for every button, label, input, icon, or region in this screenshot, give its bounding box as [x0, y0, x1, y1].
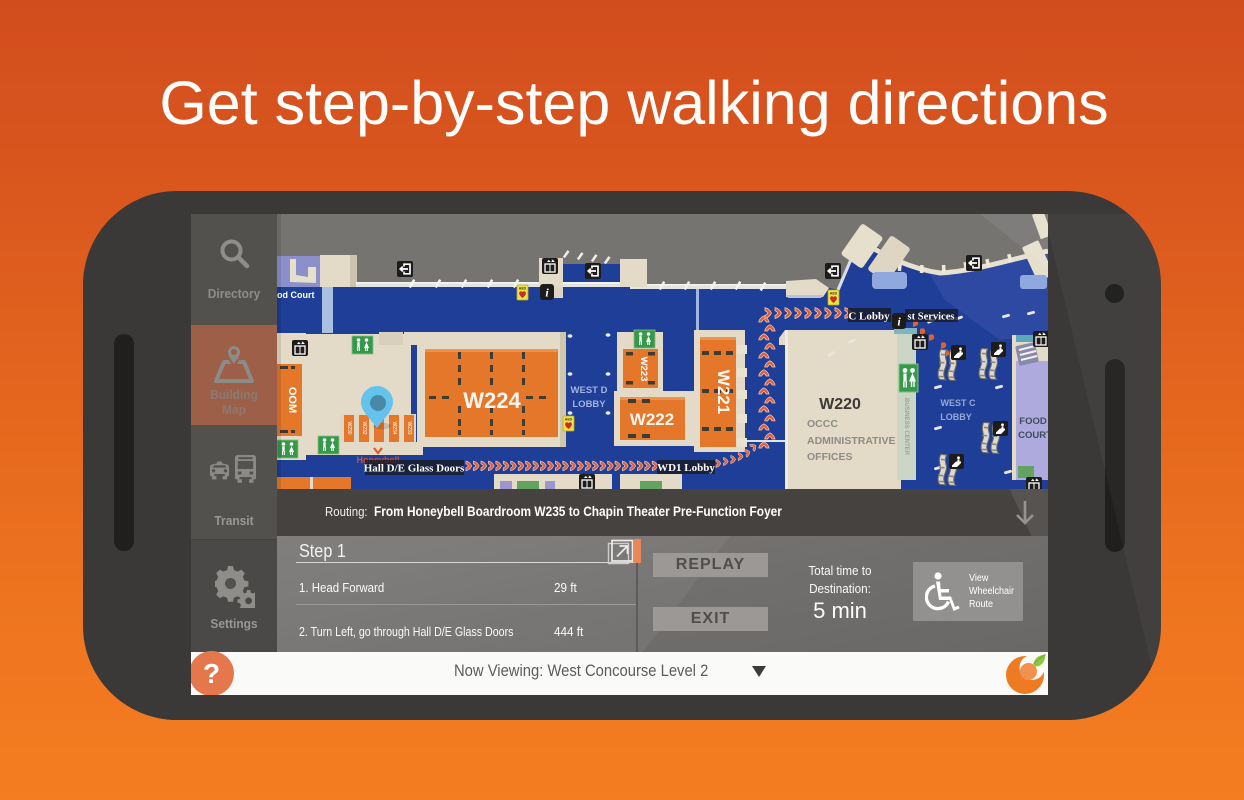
svg-text:OCCC: OCCC — [807, 418, 838, 430]
svg-text:W221: W221 — [714, 370, 733, 414]
svg-text:COURT: COURT — [1018, 430, 1048, 441]
svg-text:FOOD: FOOD — [1019, 416, 1047, 427]
svg-text:Hall D/E Glass Doors: Hall D/E Glass Doors — [364, 463, 465, 475]
svg-text:st Services: st Services — [908, 312, 955, 323]
svg-text:OFFICES: OFFICES — [807, 451, 853, 463]
svg-text:od Court: od Court — [277, 290, 315, 300]
svg-text:WD1 Lobby: WD1 Lobby — [657, 462, 715, 474]
svg-text:OOM: OOM — [286, 387, 298, 413]
svg-text:WEST D: WEST D — [571, 385, 608, 396]
svg-text:LOBBY: LOBBY — [572, 399, 606, 410]
svg-text:W224: W224 — [463, 388, 521, 413]
svg-text:W230: W230 — [346, 421, 352, 434]
svg-text:W232: W232 — [361, 421, 367, 434]
svg-text:W222: W222 — [630, 410, 674, 429]
svg-text:W233: W233 — [406, 421, 412, 434]
svg-text:WEST C: WEST C — [941, 398, 976, 408]
svg-text:W223: W223 — [638, 357, 649, 382]
svg-text:C Lobby: C Lobby — [848, 311, 890, 323]
svg-text:BUSINESS CENTER: BUSINESS CENTER — [903, 398, 909, 456]
svg-text:LOBBY: LOBBY — [940, 412, 972, 422]
svg-text:W220: W220 — [819, 396, 861, 413]
svg-text:W234: W234 — [391, 421, 397, 434]
svg-text:ADMINISTRATIVE: ADMINISTRATIVE — [807, 435, 895, 447]
